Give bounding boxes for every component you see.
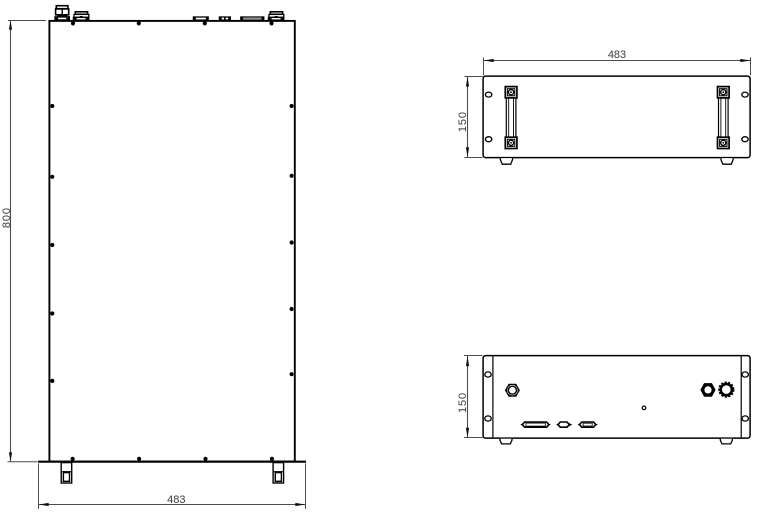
- svg-text:483: 483: [167, 494, 185, 506]
- svg-text:150: 150: [457, 111, 469, 132]
- svg-text:483: 483: [608, 49, 626, 61]
- svg-text:800: 800: [1, 207, 13, 228]
- svg-text:150: 150: [457, 392, 469, 413]
